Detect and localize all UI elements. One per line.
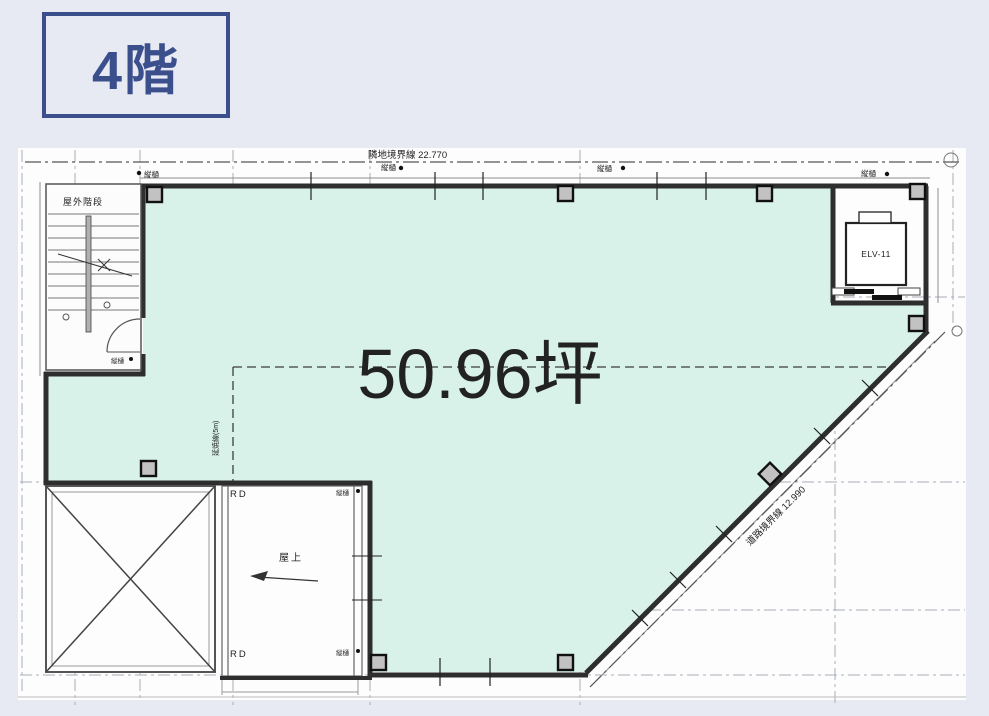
floor-plan-svg: 隣地境界線 22.770 延焼線(5m) 道路境界線 12.990 [0, 0, 989, 711]
downspout-label: 縦樋 [336, 648, 350, 657]
roof-drain-label: RD [230, 649, 248, 660]
downspout-label: 縦樋 [861, 168, 876, 178]
area-label: 50.96坪 [357, 335, 602, 413]
downspout-label: 縦樋 [381, 162, 396, 172]
stairs-label: 屋外階段 [63, 196, 103, 207]
floor-plan: 隣地境界線 22.770 延焼線(5m) 道路境界線 12.990 [0, 0, 989, 711]
void-area [46, 486, 215, 672]
downspout-label: 縦樋 [111, 356, 125, 365]
roof-area: RD RD 屋上 [220, 486, 382, 695]
elevator-label: ELV-11 [861, 249, 891, 259]
downspout-label: 縦樋 [336, 488, 350, 497]
downspout-label: 縦樋 [144, 169, 159, 179]
site-boundary-top-label: 隣地境界線 22.770 [368, 149, 447, 161]
downspout-label: 縦樋 [597, 163, 612, 173]
stair-rail [86, 216, 91, 332]
fire-line-label: 延焼線(5m) [211, 421, 220, 456]
roof-label: 屋上 [279, 552, 303, 564]
roof-drain-label: RD [230, 489, 248, 500]
stairs-room: 屋外階段 [46, 184, 141, 370]
